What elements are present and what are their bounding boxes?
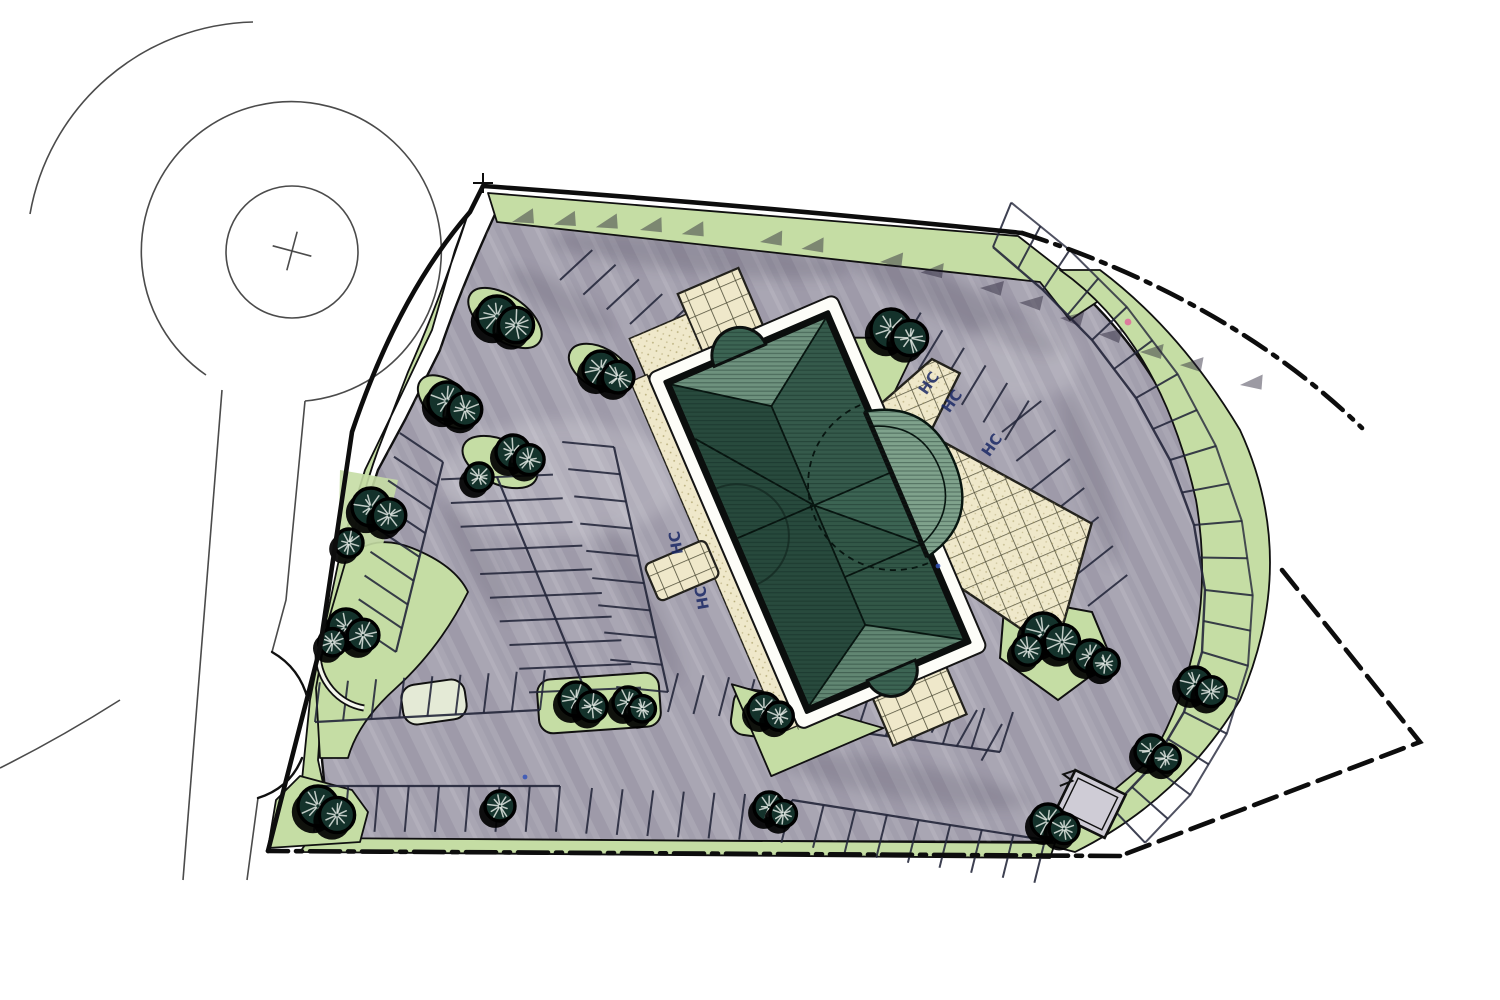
right-of-way-arc (30, 22, 253, 214)
road-edge-west (183, 390, 222, 880)
tree-canopy-icon (319, 797, 354, 832)
culdesac-center-cross-icon (268, 227, 317, 276)
tree-canopy-icon (1049, 814, 1079, 844)
curb-shadow-tooth (1240, 374, 1263, 389)
tree-canopy-icon (448, 393, 481, 426)
boundary-corner-tick-icon (473, 173, 493, 193)
tree-canopy-icon (602, 361, 634, 393)
site-plan-drawing: HCHCHCHCHC (0, 0, 1500, 1000)
tree-canopy-icon (465, 463, 493, 491)
tree-canopy-icon (629, 696, 655, 722)
pen-dot (936, 564, 941, 569)
right-of-way-line-south (0, 700, 120, 768)
tree-canopy-icon (1013, 635, 1043, 665)
tree-canopy-icon (1196, 677, 1226, 707)
tree-canopy-icon (514, 445, 544, 475)
tree-canopy-icon (347, 619, 379, 651)
tree-canopy-icon (770, 801, 796, 827)
site-plan-sheet: HCHCHCHCHC (0, 0, 1500, 1000)
pen-dot (523, 775, 528, 780)
tree-canopy-icon (765, 702, 793, 730)
tree-canopy-icon (485, 791, 515, 821)
tree-canopy-icon (577, 692, 607, 722)
pen-tick (1125, 319, 1132, 326)
tree-canopy-icon (372, 499, 405, 532)
